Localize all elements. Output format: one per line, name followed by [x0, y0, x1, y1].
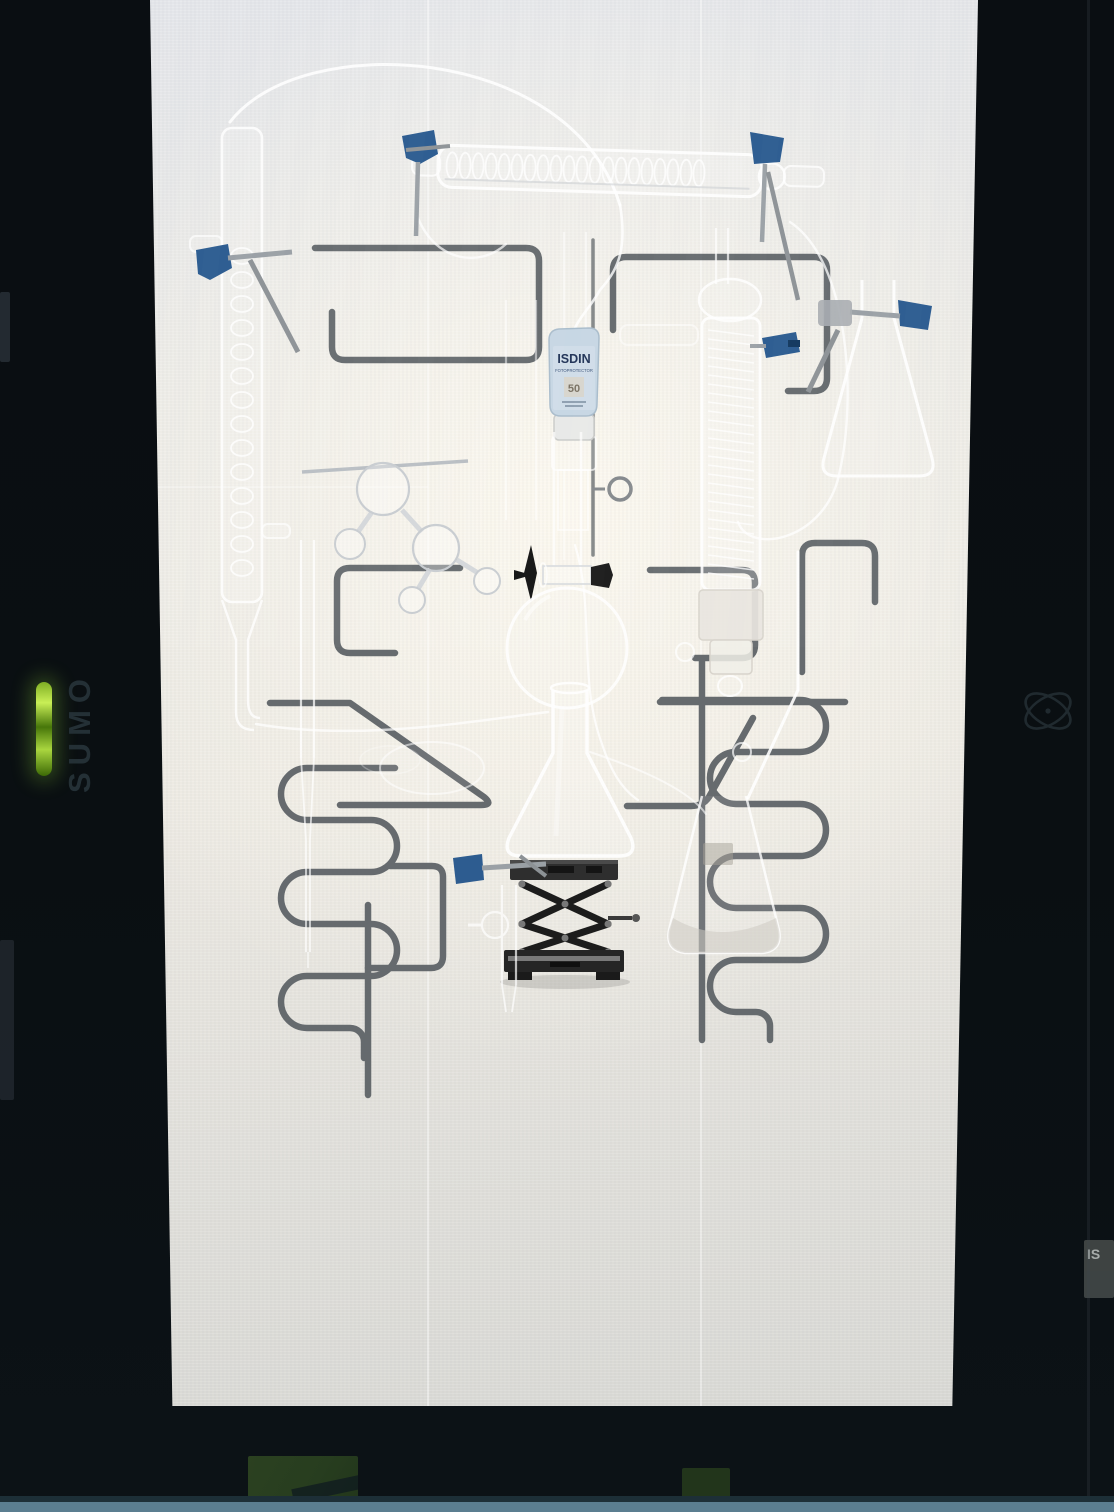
brand-label: SUMO: [58, 668, 102, 798]
metal-ring: [609, 478, 631, 500]
watch-glass: [360, 742, 484, 794]
lab-scissor-jack: [500, 860, 640, 989]
glass-tubes-center: [506, 232, 698, 520]
serpentine-tube-left: [281, 768, 397, 1058]
erlenmeyer-flask-bottom-right: [668, 796, 779, 953]
table-edge: [0, 1502, 1114, 1512]
bezel-seam: [1087, 0, 1090, 1512]
monitor-photo: SUMO IS: [0, 0, 1114, 1512]
coil-condenser-left: [190, 128, 290, 730]
glass-stopcock-piece: [468, 885, 516, 1012]
cable-glimpse: [0, 940, 14, 1100]
pipette: [301, 540, 314, 968]
bottle-brand-text: ISDIN: [557, 352, 590, 366]
molecular-model: [302, 461, 500, 613]
rod-bracket-mid-left: [337, 568, 460, 653]
display-panel: ISDIN FOTOPROTECTOR 50: [150, 0, 978, 1406]
power-led: [36, 682, 52, 776]
glassware-scene: ISDIN FOTOPROTECTOR 50: [150, 0, 978, 1406]
cable-glimpse: [0, 292, 10, 362]
atom-logo-icon: [1020, 680, 1076, 742]
rod-diagonal-right: [627, 718, 753, 806]
bottle-subline-text: FOTOPROTECTOR: [555, 368, 593, 373]
rod-hook-bottom-left: [368, 866, 443, 968]
stopcock-handle: [524, 545, 537, 601]
rod-bracket-far-right: [802, 543, 875, 672]
blue-clamp-top-right: [750, 132, 798, 300]
stopcock-cap: [591, 563, 613, 588]
flask-label: [703, 843, 733, 865]
bottle-spf-text: 50: [568, 383, 580, 395]
erlenmeyer-flask-center: [507, 683, 633, 856]
spiral-condenser-right: [699, 228, 763, 696]
